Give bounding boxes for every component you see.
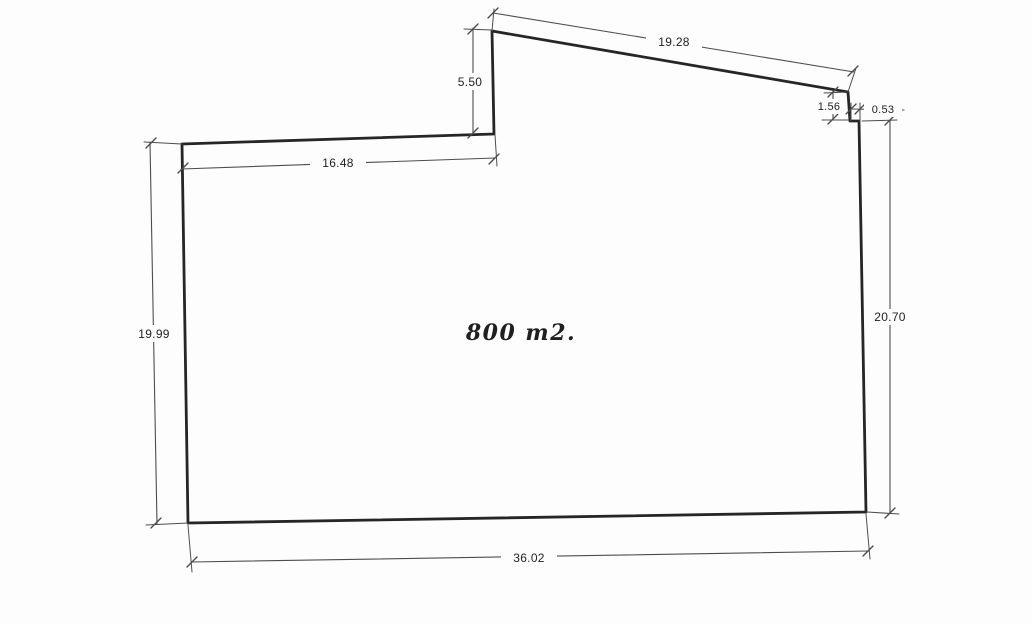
- scanned-survey-page: 19.28 5.50 16.48 1.56 0.53 20.70 19.99 3…: [0, 0, 1032, 624]
- dimension-label-right-notch-horizontal: 0.53: [872, 104, 895, 116]
- tick-mark: [489, 154, 499, 164]
- dimension-label-upper-left-vertical-edge: 5.50: [458, 75, 483, 89]
- extension-line-notch-top-left: [824, 92, 847, 93]
- dimension-label-right-notch-vertical: 1.56: [818, 101, 841, 113]
- extension-line-left-edge-bottom: [146, 523, 188, 525]
- extension-lines: [144, 9, 899, 572]
- dimension-label-right-edge: 20.70: [874, 310, 906, 324]
- extension-line-peak-left: [464, 29, 492, 30]
- dimension-label-left-edge: 19.99: [138, 327, 170, 341]
- dimension-label-bottom-edge: 36.02: [513, 551, 545, 565]
- dimension-label-upper-left-horizontal-edge: 16.48: [322, 156, 354, 170]
- tick-marks: [146, 8, 895, 567]
- dimension-label-backgrounds: [130, 33, 909, 566]
- dimension-label-top-slanted-edge: 19.28: [658, 35, 690, 49]
- extension-line-top-edge-corner-down: [495, 135, 497, 166]
- plot-boundary-outline: [182, 31, 866, 523]
- tick-mark: [151, 518, 161, 528]
- extension-line-right-edge-bottom: [867, 512, 899, 514]
- dimension-labels: 19.28 5.50 16.48 1.56 0.53 20.70 19.99 3…: [138, 35, 906, 565]
- extension-line-right-edge-top: [862, 120, 897, 121]
- plot-area-label: 800 m2.: [465, 320, 576, 346]
- dimension-lines: [150, 13, 904, 562]
- site-plan-canvas: 19.28 5.50 16.48 1.56 0.53 20.70 19.99 3…: [0, 0, 1032, 624]
